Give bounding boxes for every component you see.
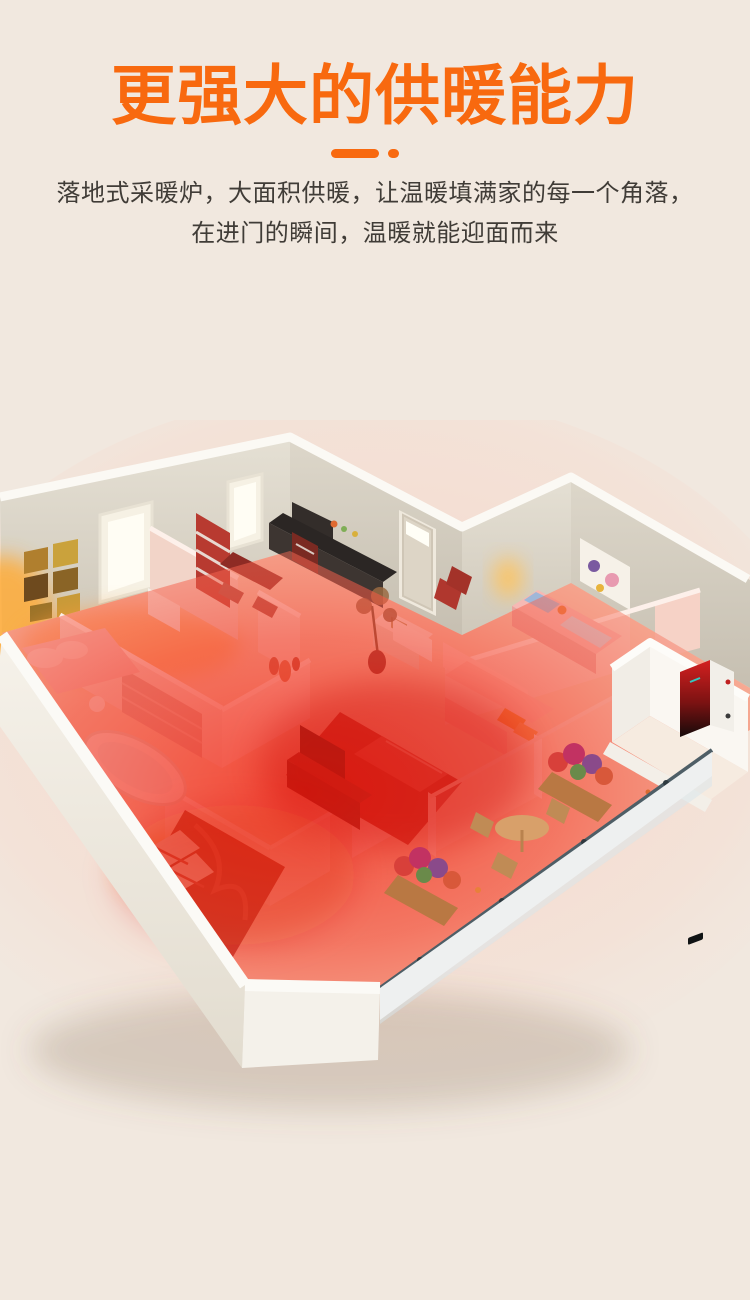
- hero-section: [0, 420, 750, 1180]
- divider-dot: [388, 149, 399, 158]
- page-header: 更强大的供暖能力 落地式采暖炉，大面积供暖，让温暖填满家的每一个角落， 在进门的…: [0, 0, 750, 254]
- page-title: 更强大的供暖能力: [0, 62, 750, 130]
- wall-sconce-glow: [494, 558, 522, 598]
- subtitle-line-1: 落地式采暖炉，大面积供暖，让温暖填满家的每一个角落，: [0, 174, 750, 214]
- subtitle-line-2: 在进门的瞬间，温暖就能迎面而来: [0, 214, 750, 254]
- title-divider: [0, 148, 740, 158]
- divider-bar: [331, 149, 379, 158]
- apartment-floorplan-illustration: [0, 420, 750, 1180]
- subtitle: 落地式采暖炉，大面积供暖，让温暖填满家的每一个角落， 在进门的瞬间，温暖就能迎面…: [0, 174, 750, 254]
